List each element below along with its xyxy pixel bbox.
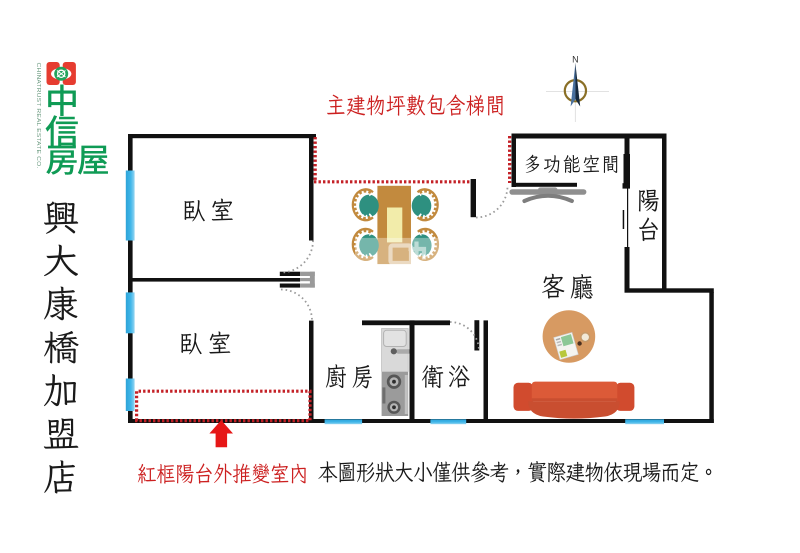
- svg-text:CHINATRUST REAL ESTATE CO.: CHINATRUST REAL ESTATE CO.: [35, 63, 41, 169]
- svg-text:N: N: [572, 55, 579, 65]
